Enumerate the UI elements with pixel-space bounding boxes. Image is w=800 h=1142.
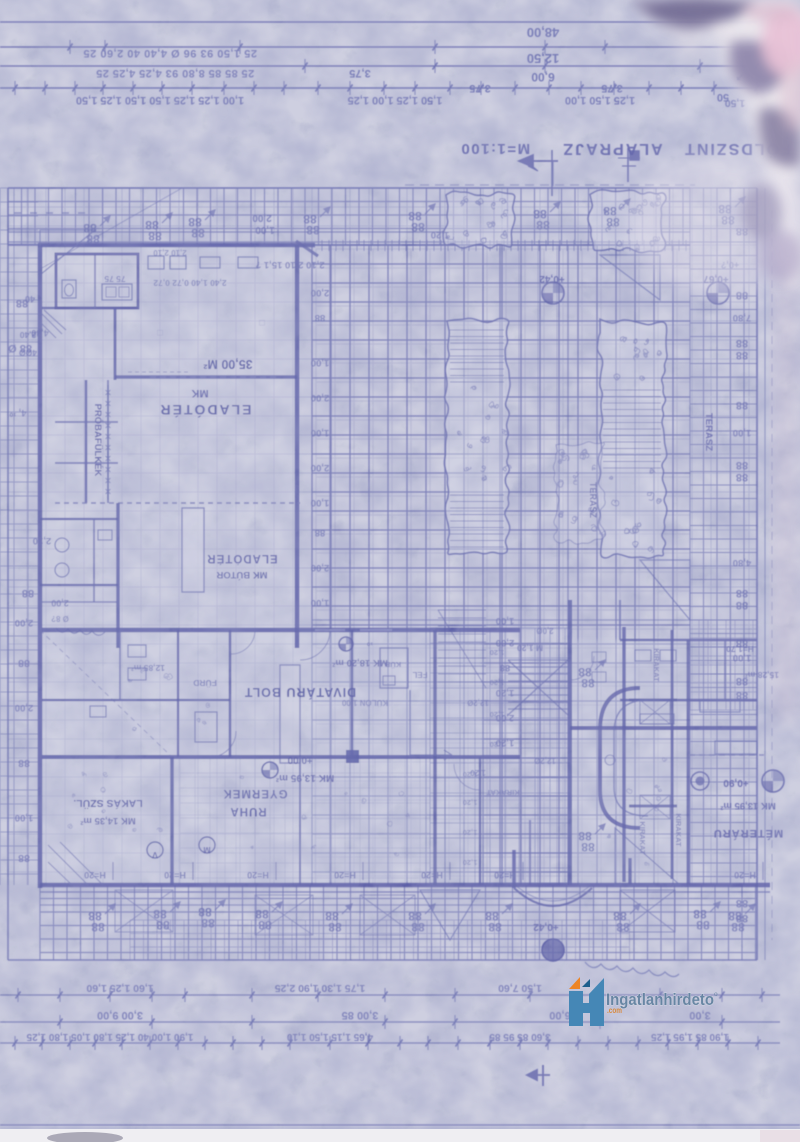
svg-text:o: o bbox=[714, 991, 718, 998]
svg-text:.com: .com bbox=[607, 1006, 622, 1015]
svg-text:Ingatlanhirdeto: Ingatlanhirdeto bbox=[606, 990, 714, 1009]
